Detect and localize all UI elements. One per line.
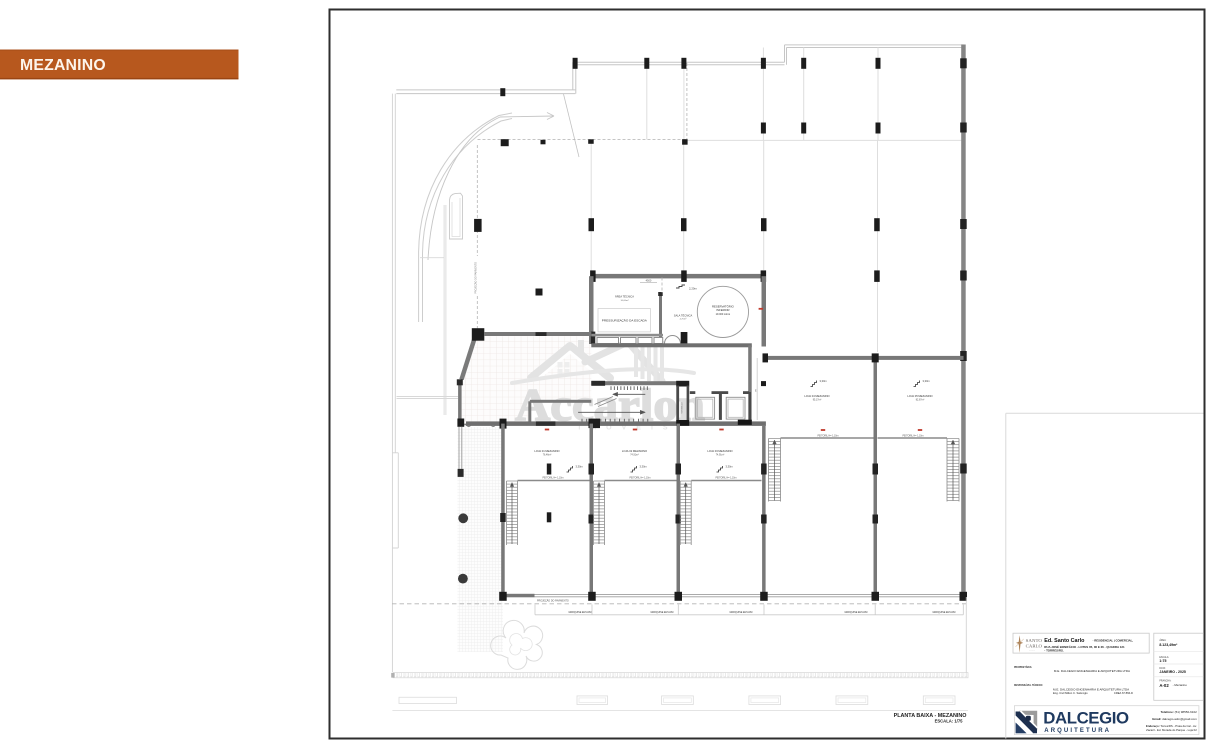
svg-text:M.E. DALCEGIO ENGENHARIA E ARQ: M.E. DALCEGIO ENGENHARIA E ARQUITETURA L… — [1054, 669, 1130, 673]
svg-text:LOJA 02 MEZANINO: LOJA 02 MEZANINO — [622, 449, 647, 453]
svg-text:MEZANINO: MEZANINO — [20, 57, 106, 74]
svg-text:ARQUITETURA: ARQUITETURA — [1044, 728, 1111, 734]
svg-text:PEITORIL H= 1,10m: PEITORIL H= 1,10m — [630, 478, 651, 480]
svg-text:RESPONSÁVEL TÉCNICO:: RESPONSÁVEL TÉCNICO: — [1014, 684, 1043, 687]
svg-text:- Mezanino: - Mezanino — [1173, 683, 1188, 687]
svg-text:INFERIOR: INFERIOR — [716, 308, 729, 312]
svg-text:3,30m: 3,30m — [726, 465, 733, 469]
svg-text:- - - - -: - - - - - — [1030, 650, 1035, 652]
svg-text:- TORRES/RS.: - TORRES/RS. — [1044, 648, 1064, 652]
svg-text:3,30m: 3,30m — [576, 465, 583, 469]
svg-text:CREA 67 866-D: CREA 67 866-D — [1114, 691, 1133, 695]
svg-text:Email: dalcegio.adm@gmail.com: Email: dalcegio.adm@gmail.com — [1152, 717, 1197, 721]
svg-text:MARQUISE EM ACM: MARQUISE EM ACM — [651, 611, 674, 614]
svg-text:74,91m²: 74,91m² — [630, 454, 639, 457]
svg-text:8.123,49m²: 8.123,49m² — [1159, 643, 1178, 647]
svg-text:PROPRIETÁRIA:: PROPRIETÁRIA: — [1014, 666, 1032, 669]
svg-text:Zacaril - Ed. Morada do Parque: Zacaril - Ed. Morada do Parque - Loja 02 — [1146, 728, 1197, 732]
svg-text:A-02: A-02 — [1159, 683, 1169, 688]
svg-text:2,20m: 2,20m — [689, 287, 697, 291]
svg-text:LOJA 03 MEZANINO: LOJA 03 MEZANINO — [707, 449, 732, 453]
svg-text:3,30m: 3,30m — [820, 379, 827, 383]
svg-text:DALCEGIO: DALCEGIO — [1043, 709, 1129, 728]
svg-text:82,67m²: 82,67m² — [916, 399, 925, 402]
svg-text:3,30m: 3,30m — [923, 379, 930, 383]
svg-text:Ed. Santo Carlo: Ed. Santo Carlo — [1044, 638, 1085, 644]
svg-text:PROJEÇÃO DO PAVIMENTO: PROJEÇÃO DO PAVIMENTO — [474, 262, 477, 294]
svg-text:E: E — [755, 389, 757, 393]
svg-text:PRESSURIZAÇÃO DA ESCADA: PRESSURIZAÇÃO DA ESCADA — [602, 317, 648, 322]
svg-text:PEITORIL H= 1,10m: PEITORIL H= 1,10m — [818, 435, 839, 437]
svg-text:Telefone: (51) 98550-6102: Telefone: (51) 98550-6102 — [1161, 710, 1197, 714]
svg-text:CARLO: CARLO — [1026, 644, 1042, 649]
svg-text:19.000 Litros: 19.000 Litros — [716, 313, 731, 316]
svg-text:4,70m²: 4,70m² — [680, 318, 687, 321]
svg-text:PEITORIL H= 1,10m: PEITORIL H= 1,10m — [716, 478, 737, 480]
svg-text:4500: 4500 — [646, 279, 652, 283]
svg-text:LOJA 04 MEZANINO: LOJA 04 MEZANINO — [804, 394, 829, 398]
svg-text:74,91m²: 74,91m² — [716, 454, 725, 457]
svg-text:3,30m: 3,30m — [640, 465, 647, 469]
svg-text:95,17m²: 95,17m² — [813, 399, 822, 402]
svg-text:ÁREA:: ÁREA: — [1159, 639, 1166, 642]
svg-text:PEITORIL H= 1,10m: PEITORIL H= 1,10m — [543, 478, 564, 480]
svg-text:MARQUISE EM ACM: MARQUISE EM ACM — [569, 611, 592, 614]
svg-text:MARQUISE EM ACM: MARQUISE EM ACM — [845, 611, 868, 614]
svg-text:LOJA 01 MEZANINO: LOJA 01 MEZANINO — [534, 449, 559, 453]
svg-text:MARQUISE EM ACM: MARQUISE EM ACM — [933, 611, 956, 614]
svg-text:LOJA 05 MEZANINO: LOJA 05 MEZANINO — [907, 394, 932, 398]
svg-text:10,00m²: 10,00m² — [620, 299, 628, 302]
svg-text:- RESIDENCIAL | COMERCIAL,: - RESIDENCIAL | COMERCIAL, — [1093, 638, 1134, 642]
svg-text:ESCALA: 1/75: ESCALA: 1/75 — [935, 719, 964, 724]
svg-text:PROJEÇÃO DO PAVIMENTO: PROJEÇÃO DO PAVIMENTO — [537, 599, 569, 602]
svg-text:1:75: 1:75 — [1159, 659, 1166, 663]
svg-text:SANTO: SANTO — [1026, 638, 1042, 643]
svg-text:76,46m²: 76,46m² — [543, 454, 552, 457]
svg-text:JANEIRO - 2025: JANEIRO - 2025 — [1159, 670, 1186, 674]
svg-text:PEITORIL H= 1,10m: PEITORIL H= 1,10m — [903, 435, 924, 437]
svg-text:VESTÍBULO: VESTÍBULO — [681, 402, 684, 414]
svg-text:Eng. Civil Milton C. Salvrogio: Eng. Civil Milton C. Salvrogio — [1053, 691, 1088, 695]
svg-text:MARQUISE EM ACM: MARQUISE EM ACM — [730, 611, 753, 614]
